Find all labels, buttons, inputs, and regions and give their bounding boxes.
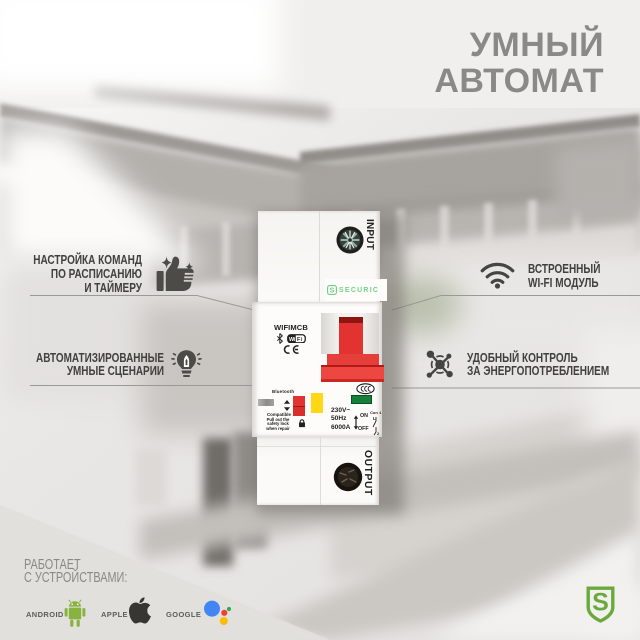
svg-text:S: S [330,288,335,295]
svg-text:S: S [592,589,609,617]
svg-text:Con: Con [370,410,378,415]
svg-text:2: 2 [377,431,380,436]
svg-text:L: L [373,416,376,421]
svg-text:1: 1 [379,412,382,416]
